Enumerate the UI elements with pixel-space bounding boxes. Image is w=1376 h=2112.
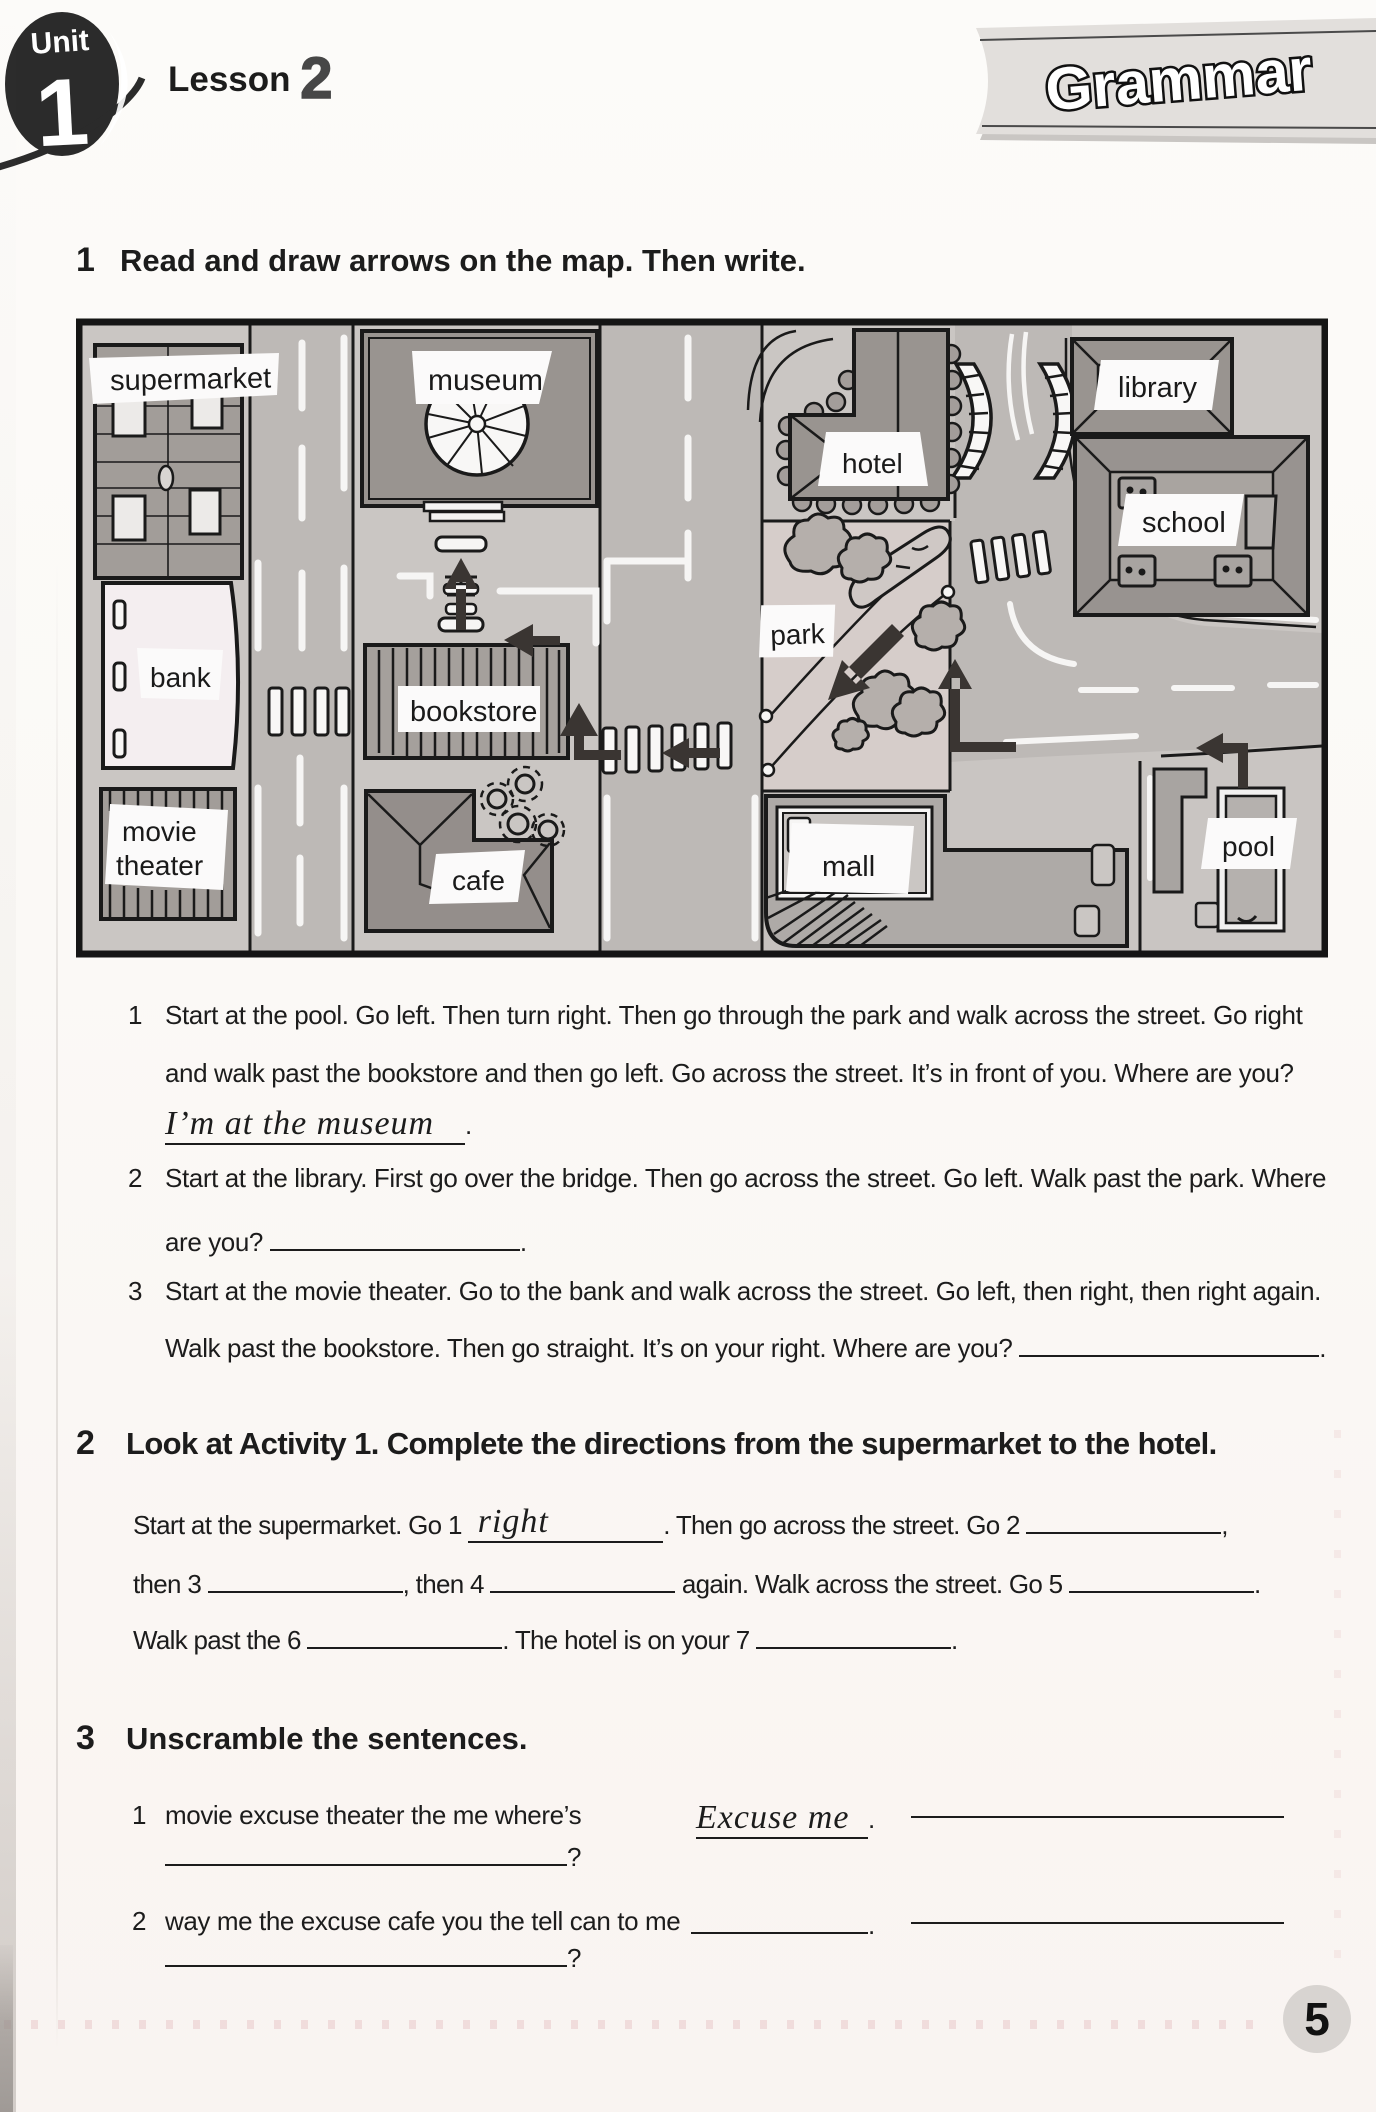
svg-text:school: school — [1142, 507, 1226, 539]
svg-text:pool: pool — [1222, 831, 1275, 862]
svg-text:library: library — [1118, 372, 1197, 404]
svg-text:bank: bank — [150, 662, 212, 693]
svg-text:movie: movie — [122, 816, 197, 847]
svg-text:bookstore: bookstore — [410, 696, 537, 728]
svg-text:hotel: hotel — [842, 448, 903, 479]
svg-text:cafe: cafe — [452, 865, 505, 896]
svg-text:Unit: Unit — [30, 24, 90, 61]
svg-text:1: 1 — [33, 59, 91, 168]
svg-text:museum: museum — [428, 364, 543, 397]
svg-text:supermarket: supermarket — [110, 362, 272, 397]
svg-text:theater: theater — [116, 850, 203, 881]
svg-text:park: park — [770, 618, 827, 651]
svg-text:mall: mall — [822, 851, 875, 883]
